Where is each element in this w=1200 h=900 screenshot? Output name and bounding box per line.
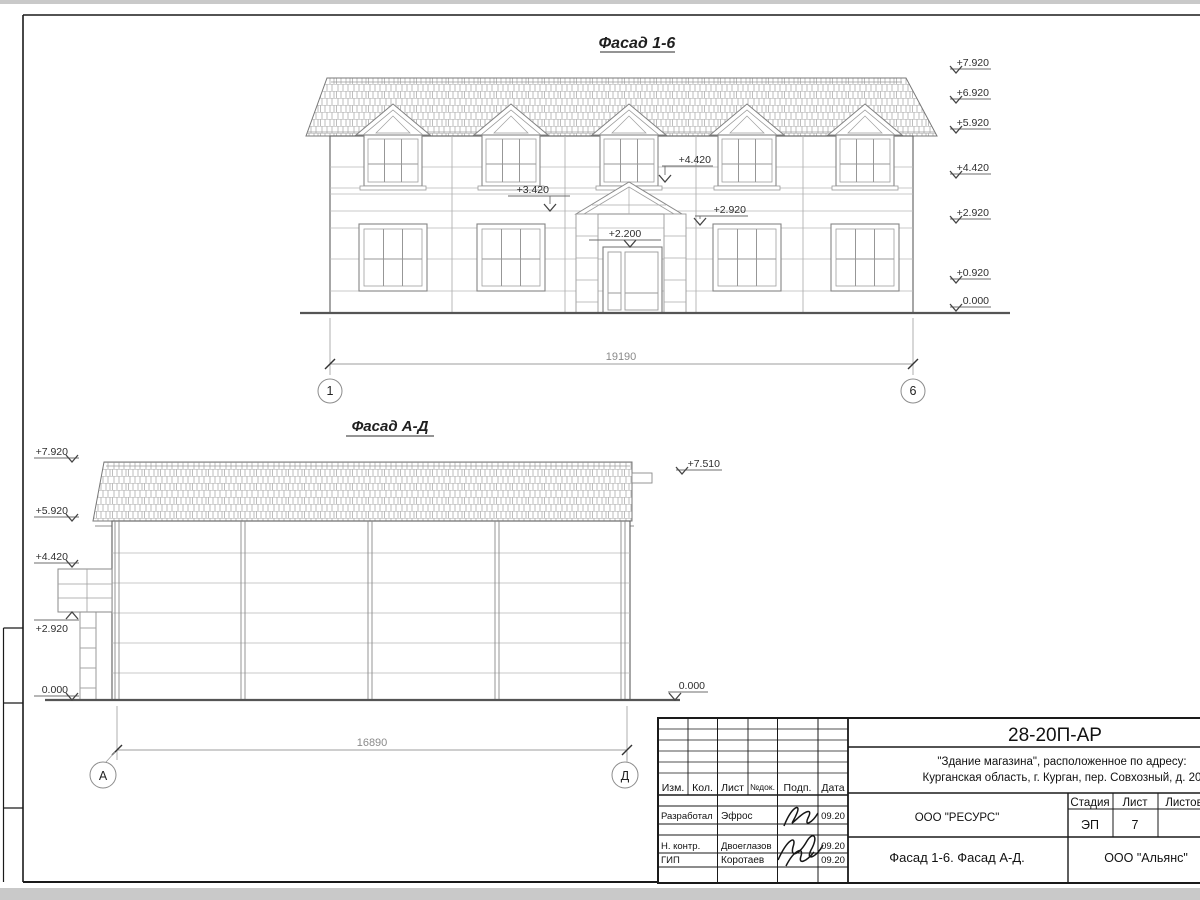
window xyxy=(831,224,899,291)
elevation-mark-label: +4.420 xyxy=(957,162,990,174)
column-header: Лист xyxy=(721,782,744,794)
elevation-mark-label: +2.200 xyxy=(609,228,642,240)
column-header: Подп. xyxy=(784,782,812,794)
column-header: Дата xyxy=(821,782,844,794)
axis-label: Д xyxy=(621,769,630,783)
designer-org: ООО "РЕСУРС" xyxy=(915,812,1000,824)
window xyxy=(477,224,545,291)
window xyxy=(713,224,781,291)
axis-label: 6 xyxy=(910,384,917,398)
sheet-title: Фасад 1-6. Фасад А-Д. xyxy=(889,850,1025,865)
axis-label: А xyxy=(99,769,108,783)
axis-label: 1 xyxy=(327,384,334,398)
column-header: №док. xyxy=(750,782,775,792)
elevation-mark-label: +2.920 xyxy=(957,207,990,219)
dimension-1-6: 19190 1 6 xyxy=(318,318,925,403)
drawing-sheet: Фасад 1-6 xyxy=(0,0,1200,900)
elevation-mark-label: 0.000 xyxy=(963,295,989,307)
name-cell: Коротаев xyxy=(721,855,764,866)
entrance-door xyxy=(603,247,662,313)
name-cell: Эфрос xyxy=(721,810,753,822)
facade-a-d-title: Фасад А-Д xyxy=(352,418,429,435)
title-block: Изм. Кол. Лист №док. Подп. Дата Разработ… xyxy=(658,718,1200,883)
elevation-mark-label: +2.920 xyxy=(714,204,747,216)
project-line1: "Здание магазина", расположенное по адре… xyxy=(937,756,1186,768)
ladder xyxy=(80,612,96,700)
sheet-number: 7 xyxy=(1132,818,1139,832)
elevation-marks-right: +7.920 +6.920 +5.920 +4.420 +2.920 +0.92… xyxy=(950,57,991,311)
doc-code: 28-20П-АР xyxy=(1008,725,1102,746)
date-cell: 09.20 xyxy=(821,841,845,852)
elevation-mark-label: +4.420 xyxy=(679,154,712,166)
sheets-label: Листов xyxy=(1165,797,1200,809)
name-cell: Двоеглазов xyxy=(721,841,772,852)
scan-edge-top xyxy=(0,0,1200,4)
elevation-mark-label: +4.420 xyxy=(36,551,69,563)
facade-1-6-title: Фасад 1-6 xyxy=(599,35,676,52)
sheet-label: Лист xyxy=(1123,797,1149,809)
company-name: ООО "Альянс" xyxy=(1104,851,1188,865)
project-line2: Курганская область, г. Курган, пер. Совх… xyxy=(923,772,1200,784)
elevation-mark-label: +7.920 xyxy=(957,57,990,69)
elevation-mark-label: 0.000 xyxy=(42,684,68,696)
facade-drawing-canvas: Фасад 1-6 xyxy=(0,0,1200,900)
elevation-mark-label: +3.420 xyxy=(517,184,550,196)
elevation-mark-label: +7.510 xyxy=(688,458,721,470)
column-header: Изм. xyxy=(662,782,685,794)
facade-a-d: Фасад А-Д +7.920 xyxy=(34,418,722,788)
elevation-mark-label: +7.920 xyxy=(36,446,69,458)
column-header: Кол. xyxy=(692,782,713,794)
dimension-label: 16890 xyxy=(357,737,388,749)
elevation-mark-label: +5.920 xyxy=(36,505,69,517)
elevation-mark-label: +6.920 xyxy=(957,87,990,99)
role-cell: ГИП xyxy=(661,855,680,866)
elevation-mark-label: +0.920 xyxy=(957,267,990,279)
facade-1-6: Фасад 1-6 xyxy=(300,35,1010,403)
elevation-mark-label: +2.920 xyxy=(36,623,69,635)
dimension-a-d: 16890 А Д xyxy=(90,706,638,788)
stage-value: ЭП xyxy=(1081,818,1099,832)
elevation-marks-right: +7.510 0.000 xyxy=(668,458,722,700)
date-cell: 09.20 xyxy=(821,811,845,822)
date-cell: 09.20 xyxy=(821,855,845,866)
dimension-label: 19190 xyxy=(606,351,637,363)
elevation-mark-label: +5.920 xyxy=(957,117,990,129)
window xyxy=(359,224,427,291)
side-annex-box xyxy=(58,569,112,612)
roof-beam xyxy=(632,473,652,483)
role-cell: Н. контр. xyxy=(661,841,700,852)
elevation-mark-label: 0.000 xyxy=(679,680,705,692)
scan-edge-bottom xyxy=(0,888,1200,900)
facade-a-d-roof xyxy=(93,462,652,526)
stage-label: Стадия xyxy=(1070,797,1109,809)
role-cell: Разработал xyxy=(661,811,713,822)
